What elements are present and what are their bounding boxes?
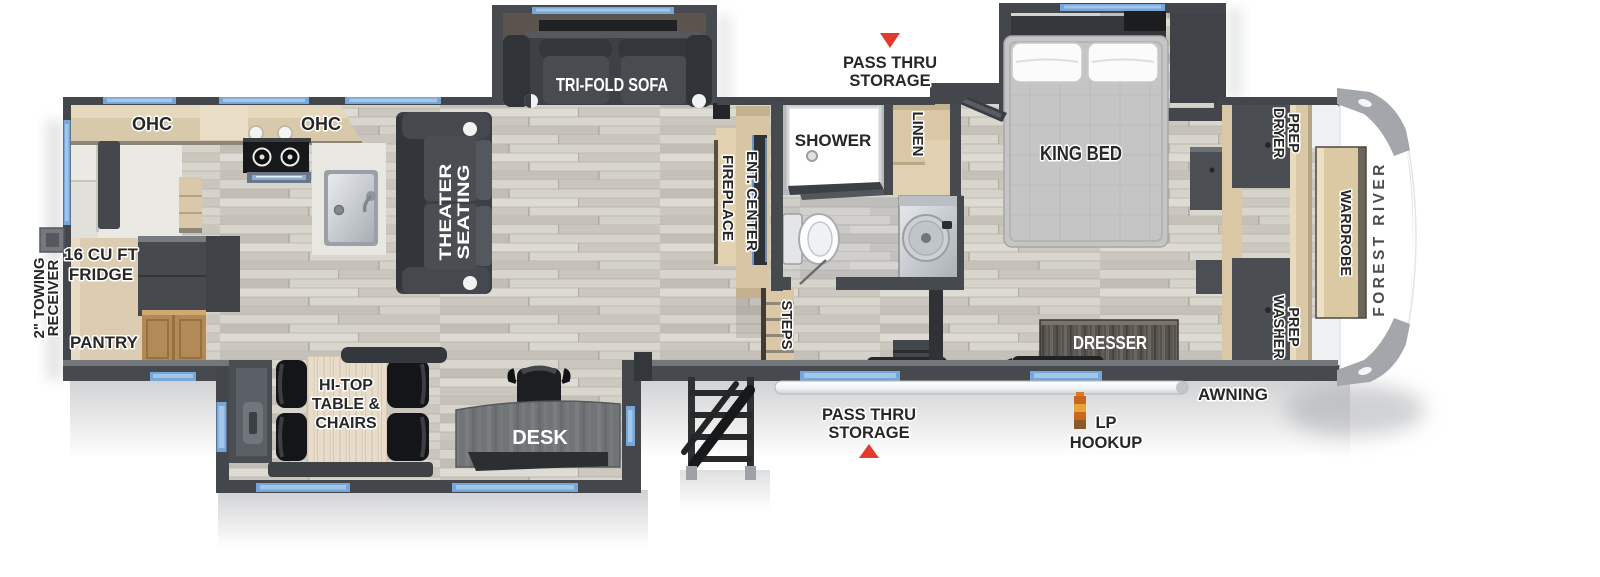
svg-text:DESK: DESK xyxy=(512,427,568,449)
svg-text:DRESSER: DRESSER xyxy=(1073,333,1147,353)
svg-text:PREP: PREP xyxy=(1285,307,1301,347)
svg-text:PASS THRU: PASS THRU xyxy=(822,406,916,424)
svg-text:LP: LP xyxy=(1095,414,1116,432)
svg-text:RECEIVER: RECEIVER xyxy=(45,259,62,336)
svg-text:STEPS: STEPS xyxy=(778,300,795,349)
svg-text:SHOWER: SHOWER xyxy=(795,131,872,150)
svg-text:WASHER: WASHER xyxy=(1270,295,1286,359)
svg-text:AWNING: AWNING xyxy=(1198,385,1268,404)
svg-text:PANTRY: PANTRY xyxy=(70,333,139,352)
svg-text:FRIDGE: FRIDGE xyxy=(69,265,133,284)
svg-text:KING BED: KING BED xyxy=(1040,143,1122,165)
svg-text:OHC: OHC xyxy=(301,114,341,134)
svg-text:ENT. CENTER: ENT. CENTER xyxy=(743,151,759,252)
svg-text:WARDROBE: WARDROBE xyxy=(1337,190,1353,277)
svg-text:STORAGE: STORAGE xyxy=(849,72,930,90)
svg-text:PASS THRU: PASS THRU xyxy=(843,54,937,72)
svg-text:16 CU FT: 16 CU FT xyxy=(64,245,138,264)
svg-text:HOOKUP: HOOKUP xyxy=(1070,434,1142,452)
svg-text:TABLE &: TABLE & xyxy=(312,396,381,413)
svg-text:CHAIRS: CHAIRS xyxy=(315,415,377,432)
svg-text:PREP: PREP xyxy=(1285,113,1301,153)
svg-text:OHC: OHC xyxy=(132,114,172,134)
svg-text:FIREPLACE: FIREPLACE xyxy=(719,155,735,241)
svg-text:FOREST RIVER: FOREST RIVER xyxy=(1371,161,1388,316)
svg-text:STORAGE: STORAGE xyxy=(828,424,909,442)
svg-text:SEATING: SEATING xyxy=(454,165,473,260)
svg-text:TRI-FOLD SOFA: TRI-FOLD SOFA xyxy=(556,75,668,95)
svg-text:HI-TOP: HI-TOP xyxy=(319,377,373,394)
svg-text:THEATER: THEATER xyxy=(436,164,455,261)
svg-text:LINEN: LINEN xyxy=(909,112,926,157)
svg-text:DRYER: DRYER xyxy=(1270,108,1286,159)
